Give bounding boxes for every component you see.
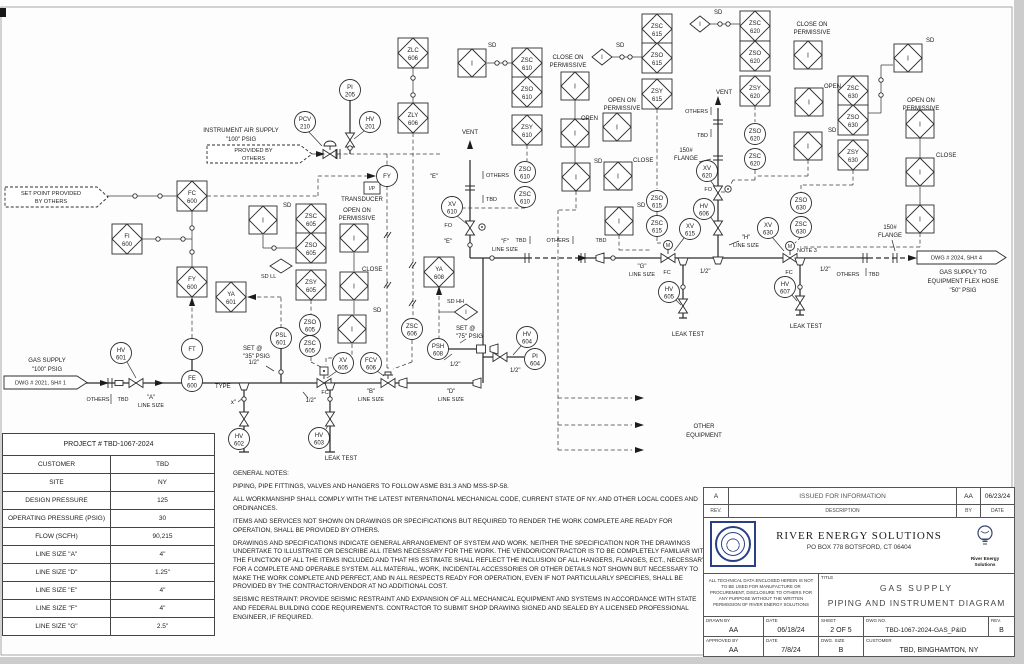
valve-xv610 — [466, 221, 475, 235]
svg-text:PROVIDED BY: PROVIDED BY — [234, 148, 273, 154]
logic-zsy630: ZSY630 — [838, 140, 868, 170]
interlock-630-third: I — [906, 205, 934, 233]
label: SD — [828, 128, 837, 134]
instrument-ft: FT — [182, 339, 203, 360]
svg-text:1/2": 1/2" — [450, 362, 460, 368]
svg-text:"A": "A" — [147, 395, 155, 401]
label: LINE SIZE — [438, 397, 464, 403]
svg-text:FY: FY — [383, 174, 391, 180]
svg-text:I: I — [808, 100, 810, 107]
valve-pcv210 — [323, 150, 337, 159]
svg-text:LEAK TEST: LEAK TEST — [790, 324, 823, 330]
label: TRANSDUCER — [341, 197, 383, 203]
logic-zso615: ZSO615 — [642, 43, 672, 73]
label: EQUIPMENT — [686, 433, 722, 439]
label: "G" — [638, 264, 647, 270]
svg-text:ZSC: ZSC — [406, 324, 419, 330]
logic-zsy605: ZSY605 — [296, 270, 326, 300]
svg-text:OTHERS: OTHERS — [87, 397, 110, 403]
svg-text:OTHERS: OTHERS — [547, 238, 570, 244]
svg-text:150#: 150# — [883, 225, 897, 231]
label: LINE SIZE — [492, 247, 518, 253]
svg-text:TBD: TBD — [697, 133, 708, 139]
oc-symbol — [272, 246, 276, 250]
oc-symbol — [681, 285, 685, 289]
customer: TBD, BINGHAMTON, NY — [864, 647, 1014, 654]
oc-symbol — [611, 256, 615, 260]
svg-text:600: 600 — [187, 384, 198, 390]
svg-text:OPEN ON: OPEN ON — [608, 98, 636, 104]
label: SD — [283, 203, 292, 209]
label: "F" — [501, 239, 509, 245]
svg-text:610: 610 — [522, 133, 533, 139]
label: "E" — [444, 239, 452, 245]
logic-zsc620: ZSC620 — [740, 11, 770, 41]
svg-text:NOTE 3: NOTE 3 — [797, 248, 817, 254]
svg-text:LINE SIZE: LINE SIZE — [492, 247, 518, 253]
svg-text:HV: HV — [523, 332, 531, 338]
svg-text:608: 608 — [433, 352, 444, 358]
label: "100" PSIG — [226, 137, 257, 143]
oc-symbol — [718, 22, 722, 26]
svg-text:TBD: TBD — [516, 238, 527, 244]
svg-text:PSH: PSH — [432, 344, 444, 350]
ar-symbol — [155, 380, 164, 386]
svg-text:ZSC: ZSC — [749, 21, 762, 27]
svg-text:PCV: PCV — [299, 117, 311, 123]
ds-symbol — [409, 262, 416, 268]
logic-zsc630: ZSC630 — [838, 76, 868, 106]
svg-text:630: 630 — [848, 158, 859, 164]
label: OTHERS — [486, 173, 509, 179]
svg-text:I: I — [574, 84, 576, 91]
tee-cap — [239, 383, 249, 390]
svg-text:"100" PSIG: "100" PSIG — [32, 367, 63, 373]
actuator-m-xv615: M — [664, 241, 673, 255]
svg-text:630: 630 — [763, 231, 774, 237]
svg-text:FLANGE: FLANGE — [674, 156, 698, 162]
instrument-pi604: PI604 — [525, 349, 546, 370]
svg-text:605: 605 — [338, 366, 349, 372]
svg-text:VENT: VENT — [716, 90, 732, 96]
svg-text:I: I — [351, 327, 353, 334]
label: CLOSE ON — [796, 22, 827, 28]
svg-text:615: 615 — [652, 204, 663, 210]
instrument-zso620: ZSO620 — [745, 124, 766, 145]
tee-cap — [678, 258, 688, 265]
svg-text:"B": "B" — [367, 389, 375, 395]
svg-text:HV: HV — [665, 287, 673, 293]
instrument-zsc610: ZSC610 — [515, 187, 536, 208]
label: FLANGE — [878, 233, 902, 239]
logic-zsy610: ZSY610 — [512, 115, 542, 145]
actuator-m-xv630: M — [786, 242, 795, 256]
diamond-sd-ll — [270, 259, 292, 273]
svg-text:FO: FO — [704, 187, 712, 193]
drawn-date: 06/18/24 — [764, 627, 818, 634]
label: GAS SUPPLY — [28, 358, 66, 364]
note-paragraph: PIPING, PIPE FITTINGS, VALVES AND HANGER… — [233, 483, 711, 492]
instrument-xv605: XV605 — [333, 353, 354, 374]
svg-text:620: 620 — [750, 162, 761, 168]
label: SD HH — [447, 299, 464, 305]
svg-text:ZSO: ZSO — [651, 196, 664, 202]
svg-text:610: 610 — [522, 95, 533, 101]
drawn-by: AA — [704, 627, 763, 634]
valve-xv620 — [714, 186, 723, 200]
svg-text:I: I — [617, 174, 619, 181]
drawing-number: TBD-1067-2024-GAS_P&ID — [864, 627, 988, 634]
svg-text:"100" PSIG: "100" PSIG — [226, 137, 257, 143]
valve-hv201 — [346, 133, 355, 147]
note-paragraph: DRAWINGS AND SPECIFICATIONS INDICATE GEN… — [233, 540, 711, 592]
svg-text:I: I — [575, 175, 577, 182]
label: OPEN ON — [907, 98, 935, 104]
svg-text:HV: HV — [700, 204, 708, 210]
svg-text:620: 620 — [702, 174, 713, 180]
svg-text:SD HH: SD HH — [447, 299, 464, 305]
label: "B" — [367, 389, 375, 395]
table-row: CUSTOMERTBD — [3, 455, 214, 473]
label: EQUIPMENT FLEX HOSE — [928, 279, 999, 285]
ar-symbol — [578, 255, 587, 261]
svg-text:TBD: TBD — [486, 197, 497, 203]
valve-hv601 — [129, 379, 143, 388]
svg-text:SD: SD — [488, 43, 497, 49]
reducer — [596, 253, 604, 263]
label: SET @ — [456, 326, 475, 332]
svg-text:LINE SIZE: LINE SIZE — [138, 403, 164, 409]
svg-text:I: I — [907, 56, 909, 63]
svg-text:FT: FT — [188, 347, 196, 353]
svg-text:OTHERS: OTHERS — [685, 109, 708, 115]
label: "50" PSIG — [950, 288, 977, 294]
svg-text:SD: SD — [714, 10, 723, 16]
company-name: RIVER ENERGY SOLUTIONS — [764, 530, 954, 542]
instrument-xv610: XV610 — [442, 197, 463, 218]
svg-text:FC: FC — [663, 270, 670, 276]
svg-text:ZSC: ZSC — [305, 214, 318, 220]
flag-dwg-2024: DWG # 2024, SH# 4 — [917, 251, 1006, 264]
drawing-title-line2: PIPING AND INSTRUMENT DIAGRAM — [819, 598, 1014, 608]
label: 150# — [883, 225, 897, 231]
label: PERMISSIVE — [794, 30, 831, 36]
logic-zsy615: ZSY615 — [642, 79, 672, 109]
flag-dwg-2021: DWG # 2021, SH# 1 — [4, 376, 87, 389]
svg-text:FCV: FCV — [365, 358, 377, 364]
label: OPEN ON — [608, 98, 636, 104]
interlock-605-sd: I — [249, 206, 277, 234]
svg-text:610: 610 — [520, 200, 531, 206]
svg-text:OPEN ON: OPEN ON — [343, 208, 371, 214]
label: PERMISSIVE — [604, 106, 641, 112]
interlock-615-close: I — [604, 162, 632, 190]
vent-arrow — [467, 140, 473, 149]
svg-text:605: 605 — [305, 328, 316, 334]
revision-description: ISSUED FOR INFORMATION — [729, 488, 956, 504]
svg-text:ZSC: ZSC — [795, 222, 808, 228]
label: OTHERS — [685, 109, 708, 115]
drawing-title-line1: GAS SUPPLY — [819, 583, 1014, 593]
approved-by: AA — [704, 647, 763, 654]
svg-text:620: 620 — [750, 94, 761, 100]
instrument-zso630: ZSO630 — [791, 193, 812, 214]
label-vent: VENT — [462, 130, 478, 136]
diamond-620-sd: I — [690, 16, 710, 32]
label: CLOSE — [936, 153, 956, 159]
svg-text:ZSC: ZSC — [749, 154, 762, 160]
diamond-608-sd-hh: I — [455, 304, 478, 320]
svg-text:605: 605 — [306, 251, 317, 257]
label: 1/2" — [450, 362, 460, 368]
oc-symbol — [411, 76, 415, 80]
interlock-605-close: I — [340, 272, 368, 300]
actuator-xv605 — [320, 367, 328, 379]
sheet-number: 2 OF 5 — [819, 627, 863, 634]
svg-text:605: 605 — [305, 349, 316, 355]
ar-symbol — [635, 395, 644, 401]
svg-text:201: 201 — [365, 125, 376, 131]
svg-text:I: I — [262, 218, 264, 225]
svg-text:FY: FY — [188, 277, 196, 283]
oc-symbol — [181, 237, 185, 241]
logic-zso605: ZSO605 — [296, 233, 326, 263]
label: OTHERS — [547, 238, 570, 244]
label: FC — [663, 270, 670, 276]
svg-text:SD: SD — [828, 128, 837, 134]
general-notes: GENERAL NOTES: PIPING, PIPE FITTINGS, VA… — [233, 470, 711, 627]
interlock-630-open-permissive: I — [906, 110, 934, 138]
svg-text:DWG # 2021, SH# 1: DWG # 2021, SH# 1 — [15, 381, 66, 387]
instrument-psh608: PSH608 — [428, 339, 449, 360]
svg-text:ZSC: ZSC — [521, 58, 534, 64]
interlock-610-open: I — [561, 119, 589, 147]
project-number: PROJECT # TBD-1067-2024 — [3, 434, 214, 455]
svg-text:603: 603 — [314, 441, 325, 447]
svg-text:OPEN: OPEN — [824, 84, 841, 90]
svg-text:LINE SIZE: LINE SIZE — [358, 397, 384, 403]
label: INSTRUMENT AIR SUPPLY — [203, 128, 278, 134]
svg-text:605: 605 — [664, 295, 675, 301]
label: OPEN — [824, 84, 841, 90]
label: PERMISSIVE — [550, 63, 587, 69]
svg-text:SET @: SET @ — [243, 346, 262, 352]
svg-text:CLOSE ON: CLOSE ON — [552, 55, 583, 61]
svg-text:I: I — [353, 236, 355, 243]
svg-text:615: 615 — [652, 32, 663, 38]
logic-zso610: ZSO610 — [512, 77, 542, 107]
valve-pi604 — [493, 353, 507, 362]
revision: B — [989, 627, 1014, 634]
ds-symbol — [384, 232, 391, 238]
ar-symbol — [189, 297, 195, 306]
svg-text:601: 601 — [276, 341, 287, 347]
svg-text:CLOSE: CLOSE — [633, 158, 653, 164]
label: SD — [373, 308, 382, 314]
interlock-610-sd: I — [458, 49, 486, 77]
svg-text:CLOSE: CLOSE — [936, 153, 956, 159]
interlock-630-close: I — [906, 158, 934, 186]
svg-text:ZSO: ZSO — [651, 53, 664, 59]
label: FC — [321, 390, 328, 396]
label: TYPE — [215, 384, 231, 390]
logic-zso620: ZSO620 — [740, 41, 770, 71]
instrument-fcv606: FCV606 — [361, 353, 382, 374]
oc-symbol — [468, 243, 472, 247]
svg-text:ZSO: ZSO — [305, 243, 318, 249]
label: LEAK TEST — [672, 332, 705, 338]
label: NOTE 3 — [797, 248, 817, 254]
interlock-605-open-permissive: I — [340, 224, 368, 252]
svg-text:601: 601 — [226, 300, 237, 306]
svg-text:620: 620 — [750, 59, 761, 65]
label: SD — [488, 43, 497, 49]
interlock-610-close-permissive: I — [561, 72, 589, 100]
svg-text:I: I — [471, 61, 473, 68]
instrument-xv620: XV620 — [697, 161, 718, 182]
svg-text:CLOSE ON: CLOSE ON — [796, 22, 827, 28]
svg-text:210: 210 — [300, 125, 311, 131]
instrument-zsc630: ZSC630 — [791, 217, 812, 238]
svg-text:1/2": 1/2" — [700, 269, 710, 275]
label-vent: VENT — [716, 90, 732, 96]
label: LEAK TEST — [325, 456, 358, 462]
svg-text:HV: HV — [366, 117, 374, 123]
interlock-620-close-permissive: I — [794, 41, 822, 69]
svg-text:ZSY: ZSY — [651, 89, 663, 95]
label: SD — [594, 159, 603, 165]
logic-ya601: YA601 — [216, 282, 246, 312]
svg-text:"G": "G" — [638, 264, 647, 270]
svg-text:BY OTHERS: BY OTHERS — [35, 199, 67, 205]
svg-text:FLANGE: FLANGE — [878, 233, 902, 239]
svg-text:600: 600 — [122, 242, 133, 248]
svg-text:GAS SUPPLY TO: GAS SUPPLY TO — [939, 270, 987, 276]
svg-text:"H": "H" — [742, 235, 751, 241]
svg-text:SD: SD — [616, 43, 625, 49]
label: PERMISSIVE — [339, 216, 376, 222]
svg-text:M: M — [666, 243, 670, 249]
svg-text:OTHERS: OTHERS — [242, 156, 266, 162]
oc-symbol — [158, 194, 162, 198]
svg-text:OTHER: OTHER — [694, 424, 716, 430]
svg-text:ZSC: ZSC — [651, 24, 664, 30]
logo-caption-line2: Solutions — [960, 562, 1010, 568]
svg-text:607: 607 — [780, 290, 791, 296]
valve-hv602 — [240, 412, 249, 426]
solenoid-xv610 — [479, 224, 485, 230]
interlock-610-shutdown: I — [562, 163, 590, 191]
note-paragraph: ALL WORKMANSHIP SHALL COMPLY WITH THE LA… — [233, 496, 711, 513]
svg-text:615: 615 — [685, 232, 696, 238]
instrument-hv605: HV605 — [659, 282, 680, 303]
svg-text:XV: XV — [703, 166, 711, 172]
svg-text:OPEN ON: OPEN ON — [907, 98, 935, 104]
svg-text:1/2": 1/2" — [306, 398, 316, 404]
svg-text:ZSC: ZSC — [651, 221, 664, 227]
svg-text:DWG # 2024, SH# 4: DWG # 2024, SH# 4 — [931, 256, 982, 262]
instrument-hv606: HV606 — [694, 199, 715, 220]
svg-text:I: I — [919, 217, 921, 224]
oc-symbol — [190, 250, 194, 254]
ar-symbol — [908, 255, 917, 261]
instrument-hv604: HV604 — [517, 327, 538, 348]
svg-text:605: 605 — [306, 288, 317, 294]
ip-transducer-box: I/P — [364, 182, 380, 194]
svg-text:615: 615 — [652, 61, 663, 67]
svg-text:FO: FO — [444, 223, 452, 229]
oc-symbol — [490, 256, 494, 260]
oc-symbol — [156, 237, 160, 241]
logic-zsc610: ZSC610 — [512, 48, 542, 78]
valve-hv603 — [326, 412, 335, 426]
label: "100" PSIG — [32, 367, 63, 373]
svg-text:610: 610 — [447, 210, 458, 216]
svg-text:1/2": 1/2" — [249, 360, 259, 366]
ds-symbol — [409, 300, 416, 306]
svg-text:OPEN: OPEN — [581, 116, 598, 122]
ar-symbol — [635, 422, 644, 428]
svg-text:HV: HV — [235, 434, 243, 440]
flag-set-point: SET POINT PROVIDEDBY OTHERS — [5, 187, 108, 207]
vent-arrow — [715, 96, 721, 105]
svg-text:SD: SD — [926, 38, 935, 44]
svg-text:PERMISSIVE: PERMISSIVE — [604, 106, 641, 112]
oc-symbol — [620, 55, 624, 59]
label: OTHER — [694, 424, 716, 430]
label: LEAK TEST — [790, 324, 823, 330]
oc-symbol — [495, 61, 499, 65]
svg-text:ZLY: ZLY — [408, 113, 419, 119]
logic-ya608: YA608 — [424, 257, 454, 287]
svg-text:150#: 150# — [679, 148, 693, 154]
logic-fi600: FI600 — [112, 224, 142, 254]
svg-text:LEAK TEST: LEAK TEST — [672, 332, 705, 338]
svg-text:606: 606 — [407, 332, 418, 338]
svg-text:600: 600 — [187, 199, 198, 205]
valve-xv615 — [661, 254, 675, 263]
svg-text:SD: SD — [594, 159, 603, 165]
svg-text:ZSO: ZSO — [519, 167, 532, 173]
svg-text:FC: FC — [321, 390, 328, 396]
svg-text:TBD: TBD — [596, 238, 607, 244]
svg-text:I/P: I/P — [369, 186, 376, 192]
sheet-margin — [0, 657, 1024, 664]
svg-text:YA: YA — [435, 267, 443, 273]
svg-text:1/2": 1/2" — [820, 267, 830, 273]
svg-text:604: 604 — [530, 362, 541, 368]
drawing-size: B — [819, 647, 863, 654]
instrument-fe600: FE600 — [182, 371, 203, 392]
label: 150# — [679, 148, 693, 154]
svg-text:LINE SIZE: LINE SIZE — [733, 243, 759, 249]
label: FC — [785, 270, 792, 276]
label: "A" — [147, 395, 155, 401]
oc-symbol — [879, 78, 883, 82]
table-row: DESIGN PRESSURE125 — [3, 491, 214, 509]
tee-cap — [795, 258, 805, 265]
insulating-joint — [115, 381, 123, 386]
oc-symbol — [798, 285, 802, 289]
svg-text:PERMISSIVE: PERMISSIVE — [550, 63, 587, 69]
svg-text:605: 605 — [306, 222, 317, 228]
actuator-fcv606 — [383, 372, 393, 379]
label: PERMISSIVE — [903, 106, 940, 112]
sheet-margin — [1014, 0, 1024, 664]
label: GAS SUPPLY TO — [939, 270, 987, 276]
svg-text:XV: XV — [448, 202, 456, 208]
svg-text:TYPE: TYPE — [215, 384, 231, 390]
